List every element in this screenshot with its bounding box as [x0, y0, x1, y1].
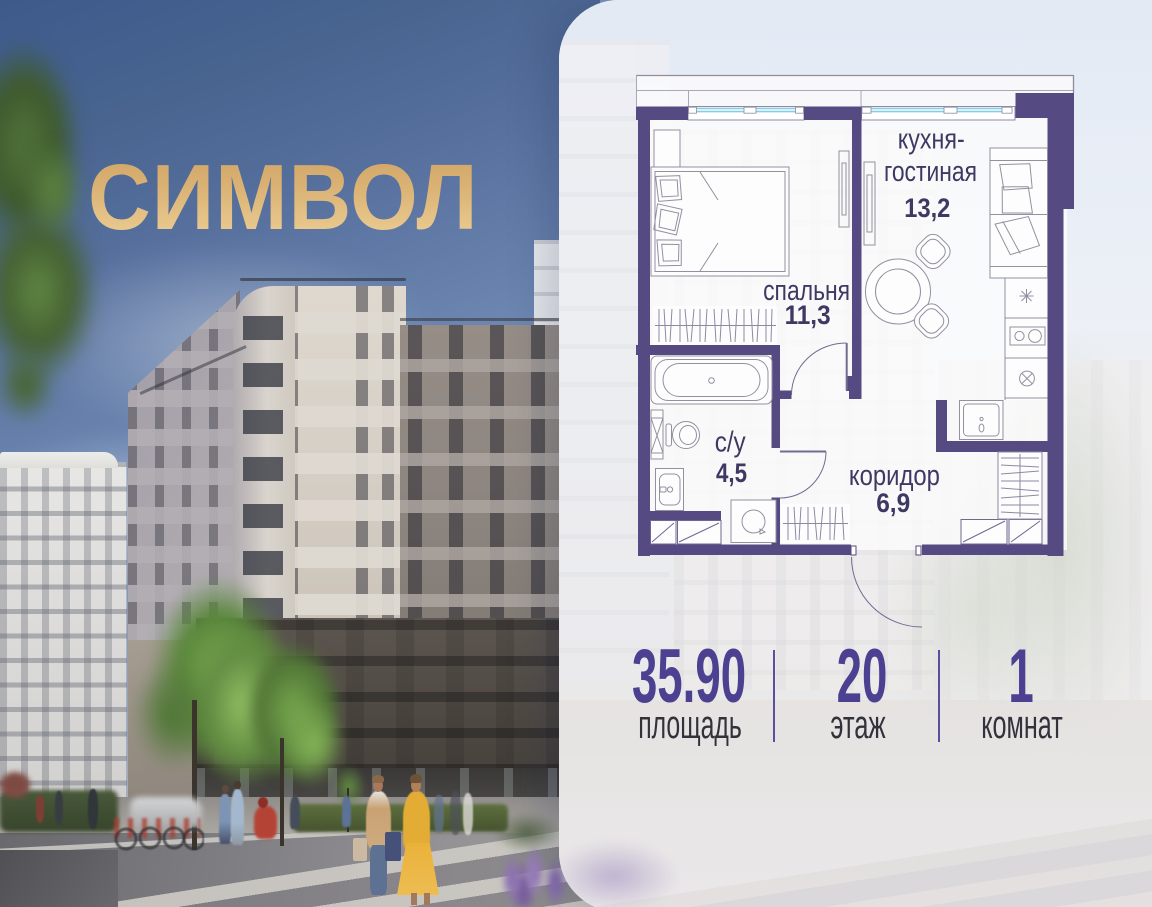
svg-text:кухня-: кухня- — [898, 123, 965, 155]
svg-text:13,2: 13,2 — [904, 193, 950, 223]
svg-text:4,5: 4,5 — [716, 458, 747, 488]
svg-text:11,3: 11,3 — [785, 300, 831, 330]
svg-text:гостиная: гостиная — [884, 156, 977, 188]
svg-text:с/у: с/у — [715, 427, 746, 459]
svg-text:6,9: 6,9 — [876, 488, 910, 518]
